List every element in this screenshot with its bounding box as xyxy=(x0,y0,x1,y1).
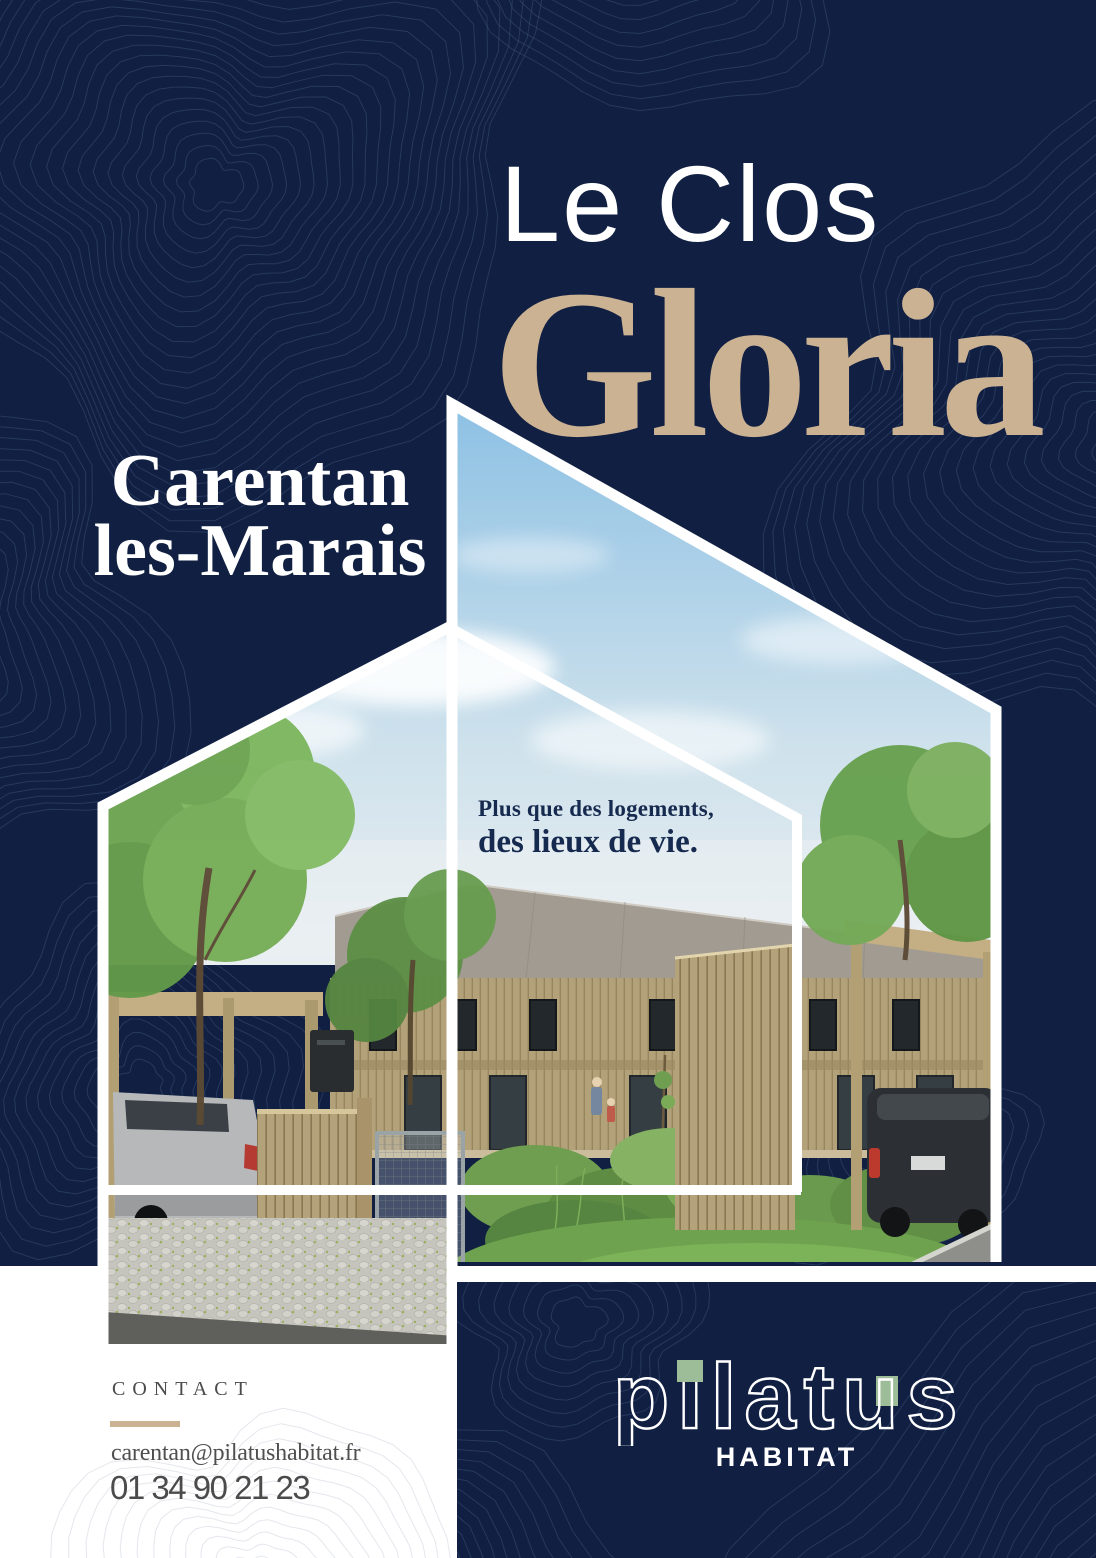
contact-email[interactable]: carentan@pilatushabitat.fr xyxy=(111,1440,360,1467)
contact-divider-rule xyxy=(110,1421,180,1427)
brand-subtitle: HABITAT xyxy=(457,1442,1096,1473)
tagline-line1: Plus que des logements, xyxy=(478,795,714,823)
project-title-line1: Le Clos xyxy=(500,150,880,258)
brand-panel: pilatus HABITAT xyxy=(457,1282,1096,1558)
location-line1: Carentan xyxy=(64,446,456,516)
contact-heading: CONTACT xyxy=(112,1378,254,1401)
contact-phone[interactable]: 01 34 90 21 23 xyxy=(110,1469,309,1507)
left-car xyxy=(113,1092,265,1239)
location-line2: les-Marais xyxy=(64,516,456,586)
pilatus-logo: pilatus xyxy=(609,1360,969,1446)
brand-name: pilatus xyxy=(613,1360,965,1446)
location-name: Carentan les-Marais xyxy=(64,446,456,586)
logo-green-accent-i xyxy=(677,1360,703,1382)
tagline-line2: des lieux de vie. xyxy=(478,823,714,861)
project-title-line2: Gloria xyxy=(492,258,1039,470)
tagline: Plus que des logements, des lieux de vie… xyxy=(478,795,714,861)
right-car xyxy=(867,1088,999,1239)
